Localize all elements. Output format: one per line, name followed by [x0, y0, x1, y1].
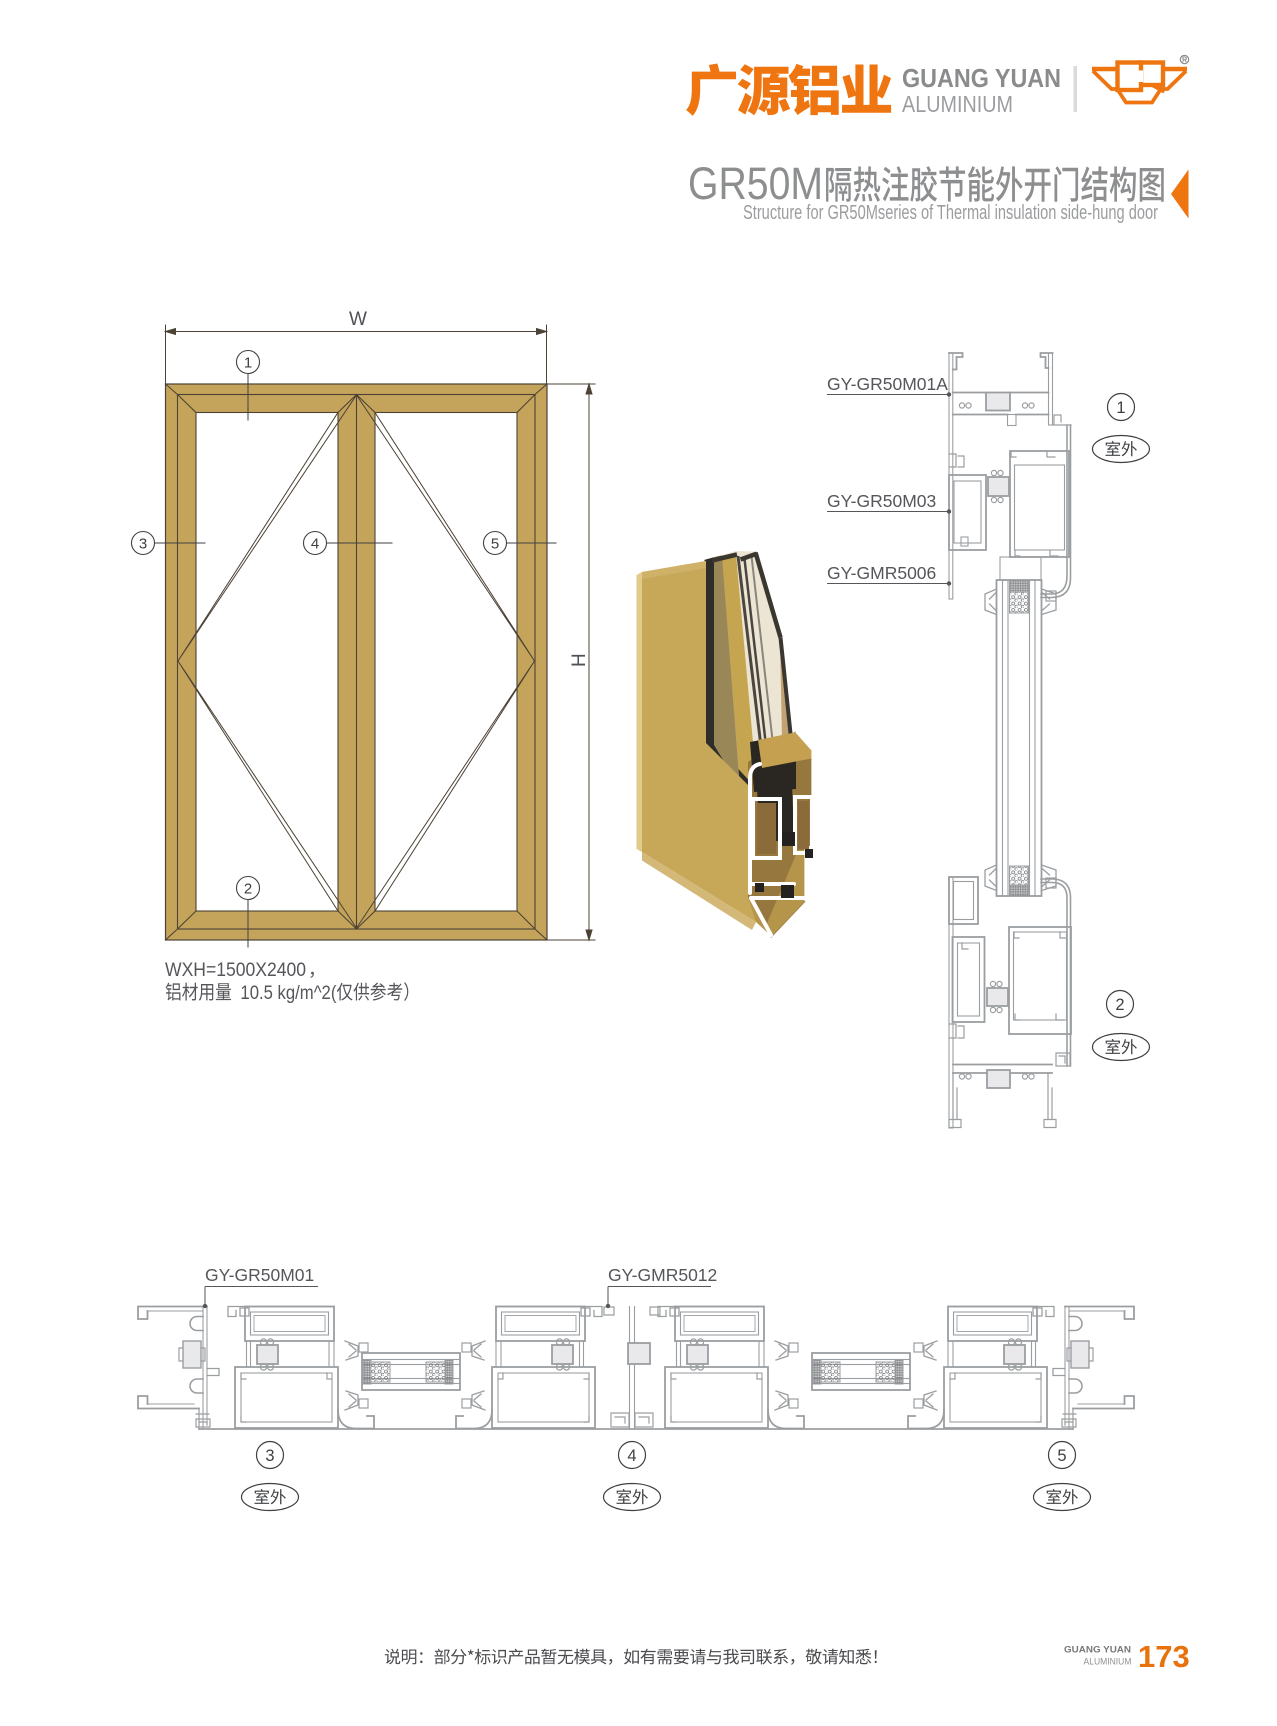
svg-text:H: H: [569, 653, 590, 667]
svg-text:W: W: [349, 309, 367, 330]
svg-text:10.5 kg/m^2(: 10.5 kg/m^2(: [240, 982, 336, 1003]
svg-text:3: 3: [265, 1447, 274, 1465]
svg-text:ALUMINIUM: ALUMINIUM: [902, 91, 1013, 117]
svg-text:3: 3: [139, 536, 147, 553]
svg-text:GUANG YUAN: GUANG YUAN: [1064, 1645, 1131, 1656]
svg-text:Structure for GR50Mseries of T: Structure for GR50Mseries of Thermal ins…: [743, 202, 1158, 224]
svg-text:5: 5: [1057, 1447, 1066, 1465]
svg-text:5: 5: [491, 536, 499, 553]
svg-text:WXH=1500X2400: WXH=1500X2400: [165, 960, 306, 981]
svg-text:173: 173: [1138, 1639, 1190, 1674]
svg-text:4: 4: [311, 536, 319, 553]
svg-text:GY-GR50M01A: GY-GR50M01A: [827, 374, 948, 394]
svg-text:GY-GR50M03: GY-GR50M03: [827, 491, 936, 511]
svg-text:1: 1: [1116, 399, 1125, 417]
svg-text:2: 2: [1115, 996, 1124, 1014]
svg-text:GY-GMR5012: GY-GMR5012: [608, 1265, 717, 1285]
svg-text:GY-GMR5006: GY-GMR5006: [827, 563, 936, 583]
svg-text:4: 4: [627, 1447, 636, 1465]
svg-text:1: 1: [244, 355, 252, 372]
svg-text:GUANG YUAN: GUANG YUAN: [902, 63, 1061, 93]
svg-text:ALUMINIUM: ALUMINIUM: [1084, 1657, 1132, 1667]
svg-text:2: 2: [244, 881, 252, 898]
svg-text:GY-GR50M01: GY-GR50M01: [205, 1265, 314, 1285]
